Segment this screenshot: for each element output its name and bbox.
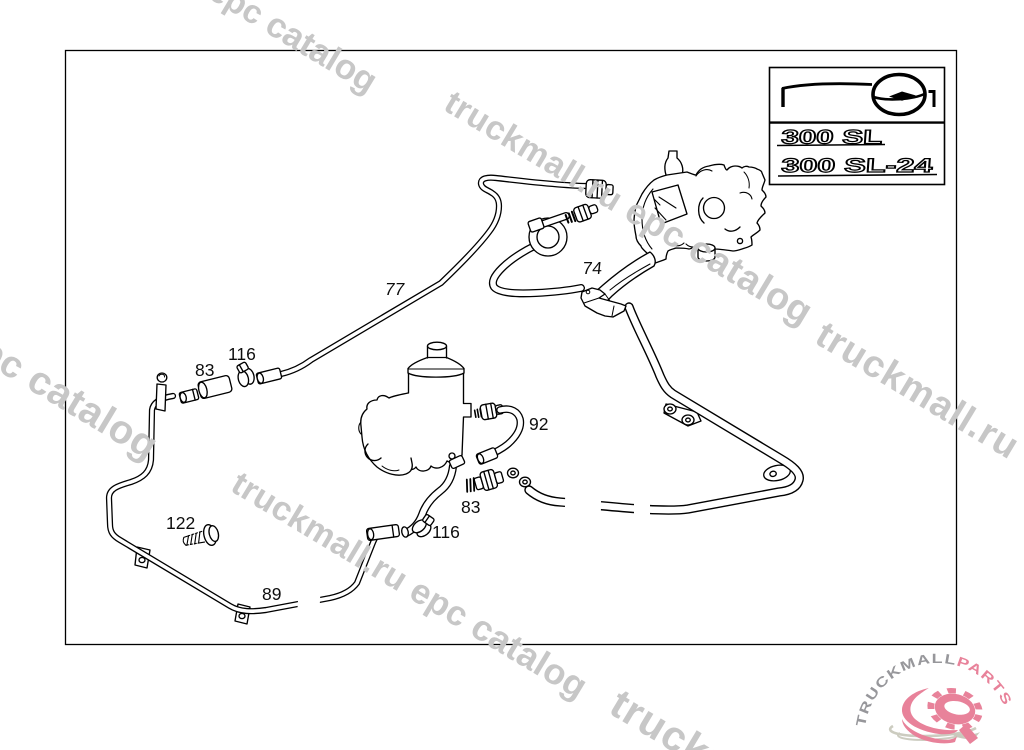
svg-text:truckmall.ru epc catalog: truckmall.ru epc catalog <box>808 309 1024 599</box>
svg-text:83: 83 <box>195 360 214 380</box>
svg-text:116: 116 <box>432 522 460 542</box>
svg-text:83: 83 <box>461 497 480 517</box>
svg-text:truckmall.ru epc catalog: truckmall.ru epc catalog <box>0 202 166 468</box>
svg-text:300 SL-24: 300 SL-24 <box>781 155 934 177</box>
svg-text:116: 116 <box>228 344 256 364</box>
svg-text:122: 122 <box>166 513 195 533</box>
svg-text:89: 89 <box>262 584 281 604</box>
svg-text:92: 92 <box>529 414 548 434</box>
svg-text:77: 77 <box>383 279 406 299</box>
svg-text:74: 74 <box>582 258 604 278</box>
